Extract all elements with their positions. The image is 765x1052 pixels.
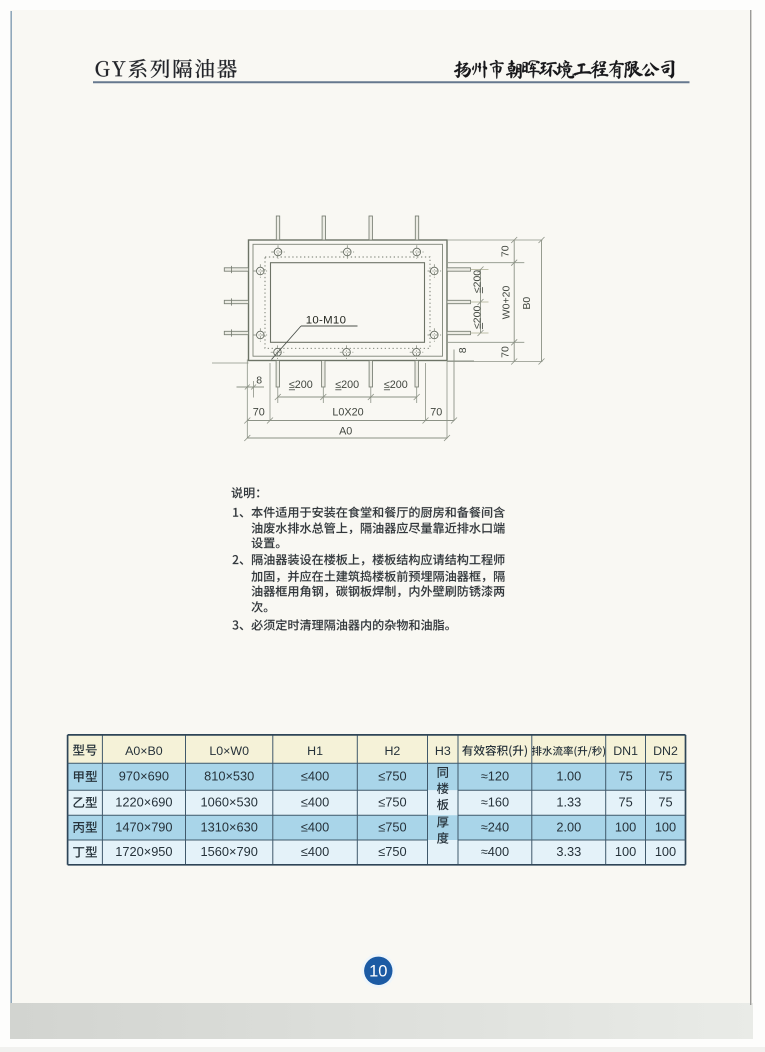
- svg-text:75: 75: [658, 769, 672, 784]
- svg-text:≤400: ≤400: [301, 819, 329, 834]
- svg-text:≤400: ≤400: [301, 769, 329, 784]
- svg-text:8: 8: [256, 375, 262, 387]
- svg-text:DN1: DN1: [613, 744, 638, 758]
- svg-text:70: 70: [500, 346, 512, 358]
- svg-text:1560×790: 1560×790: [201, 844, 258, 859]
- svg-text:B0: B0: [521, 297, 533, 310]
- svg-text:1.00: 1.00: [556, 769, 581, 784]
- svg-text:≤750: ≤750: [378, 844, 406, 859]
- svg-text:100: 100: [655, 844, 676, 859]
- svg-text:8: 8: [457, 347, 469, 353]
- svg-text:1310×630: 1310×630: [201, 819, 258, 834]
- svg-text:70: 70: [430, 407, 442, 419]
- svg-text:70: 70: [500, 245, 512, 257]
- svg-text:≤750: ≤750: [378, 795, 406, 810]
- svg-text:10: 10: [369, 963, 387, 981]
- svg-text:≤200: ≤200: [472, 306, 484, 329]
- svg-text:810×530: 810×530: [204, 769, 254, 784]
- svg-text:L0X20: L0X20: [332, 407, 363, 419]
- svg-text:A0×B0: A0×B0: [125, 744, 163, 758]
- svg-text:≈160: ≈160: [481, 795, 509, 810]
- svg-text:1220×690: 1220×690: [115, 795, 172, 810]
- svg-text:DN2: DN2: [653, 744, 678, 758]
- svg-text:100: 100: [655, 819, 676, 834]
- svg-text:75: 75: [618, 795, 632, 810]
- svg-text:75: 75: [618, 769, 632, 784]
- svg-text:A0: A0: [339, 425, 352, 437]
- svg-text:W0+20: W0+20: [501, 286, 513, 320]
- svg-text:L0×W0: L0×W0: [209, 744, 249, 758]
- svg-text:70: 70: [253, 407, 265, 419]
- svg-text:≈240: ≈240: [481, 819, 509, 834]
- svg-text:1.33: 1.33: [556, 795, 581, 810]
- svg-text:2.00: 2.00: [556, 819, 581, 834]
- svg-text:1720×950: 1720×950: [115, 844, 172, 859]
- svg-text:≤200: ≤200: [472, 270, 484, 293]
- svg-text:1470×790: 1470×790: [115, 819, 172, 834]
- svg-text:100: 100: [615, 844, 636, 859]
- svg-text:H2: H2: [384, 744, 400, 758]
- svg-text:3.33: 3.33: [556, 844, 581, 859]
- svg-text:≤400: ≤400: [301, 795, 329, 810]
- svg-text:H3: H3: [435, 744, 451, 758]
- svg-text:75: 75: [658, 795, 672, 810]
- svg-text:≈120: ≈120: [481, 769, 509, 784]
- svg-text:970×690: 970×690: [119, 769, 169, 784]
- svg-text:≤750: ≤750: [378, 769, 406, 784]
- svg-text:100: 100: [615, 819, 636, 834]
- svg-text:H1: H1: [307, 744, 323, 758]
- svg-text:10-M10: 10-M10: [306, 315, 346, 327]
- svg-text:≤750: ≤750: [378, 819, 406, 834]
- svg-text:≤400: ≤400: [301, 844, 329, 859]
- svg-text:≈400: ≈400: [481, 844, 509, 859]
- svg-text:1060×530: 1060×530: [201, 795, 258, 810]
